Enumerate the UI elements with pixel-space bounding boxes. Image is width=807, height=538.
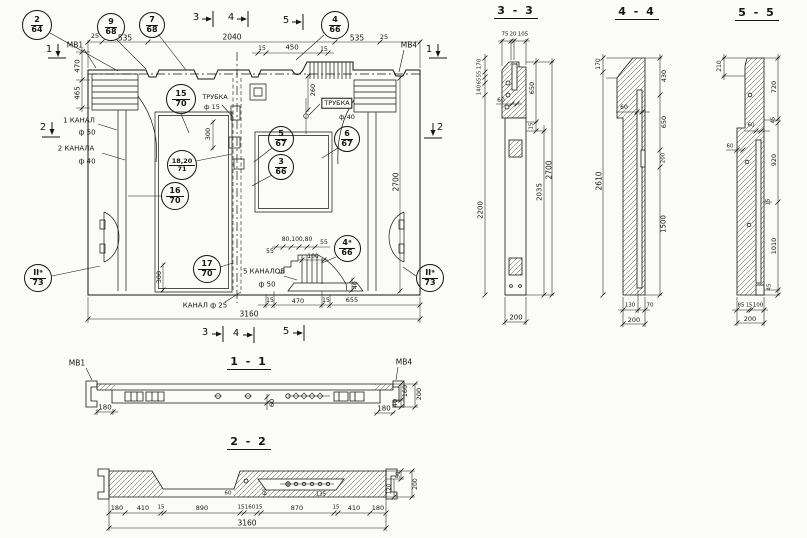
title-section-3-3: 3 - 3 (494, 4, 538, 19)
section-cut-marks (42, 11, 447, 343)
section-5-5 (722, 54, 781, 326)
main-elevation-details (92, 62, 404, 292)
drawing-canvas: 1 - 1 2 - 2 3 - 3 4 - 4 5 - 5 МВ1МВ42553… (0, 0, 807, 538)
drawing-linework (0, 0, 807, 538)
section-3-3 (483, 39, 555, 326)
section-4-4 (601, 54, 663, 327)
title-section-5-5: 5 - 5 (735, 6, 779, 21)
title-section-1-1: 1 - 1 (227, 355, 271, 370)
section-1-1 (86, 367, 418, 416)
section-2-2 (98, 469, 415, 532)
main-dimension-lines (76, 40, 420, 323)
main-dimension-ticks (80, 40, 423, 322)
title-section-2-2: 2 - 2 (227, 435, 271, 450)
title-section-4-4: 4 - 4 (615, 5, 659, 20)
